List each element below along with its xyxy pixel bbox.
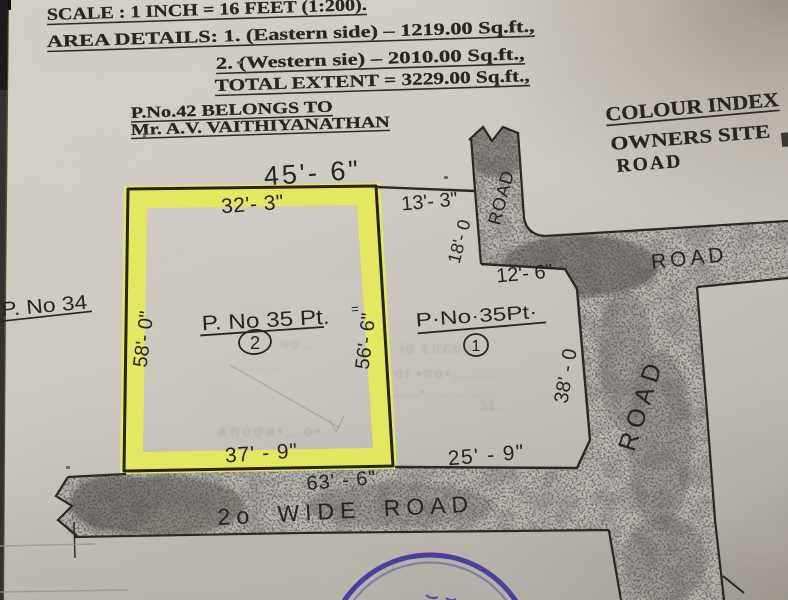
svg-text:………: ……… (240, 358, 285, 373)
svg-text:=: = (351, 301, 359, 316)
svg-text:32'- 3": 32'- 3" (220, 191, 284, 218)
svg-text:51…: 51… (480, 397, 510, 413)
svg-text:…oσ…: …oσ… (265, 335, 317, 351)
svg-text:io ɛπcσο: io ɛπcσο (400, 340, 474, 357)
svg-text:aπoσa•…ο•: aπoσa•…ο• (218, 423, 323, 440)
svg-text:σi •πο•………: σi •πο•……… (395, 365, 500, 381)
svg-text:2: 2 (250, 333, 260, 353)
